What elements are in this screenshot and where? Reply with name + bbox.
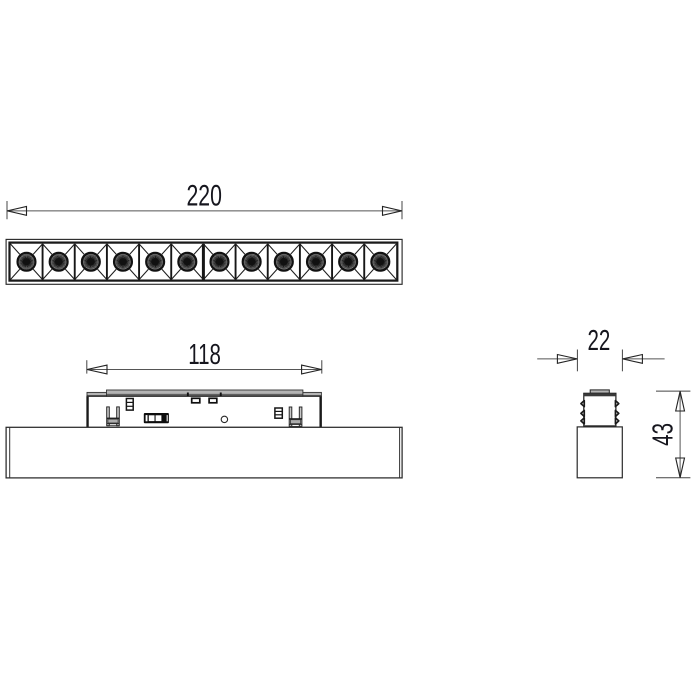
svg-text:220: 220	[186, 180, 221, 212]
svg-text:43: 43	[648, 423, 679, 446]
svg-text:22: 22	[587, 326, 610, 357]
svg-text:118: 118	[188, 340, 221, 371]
